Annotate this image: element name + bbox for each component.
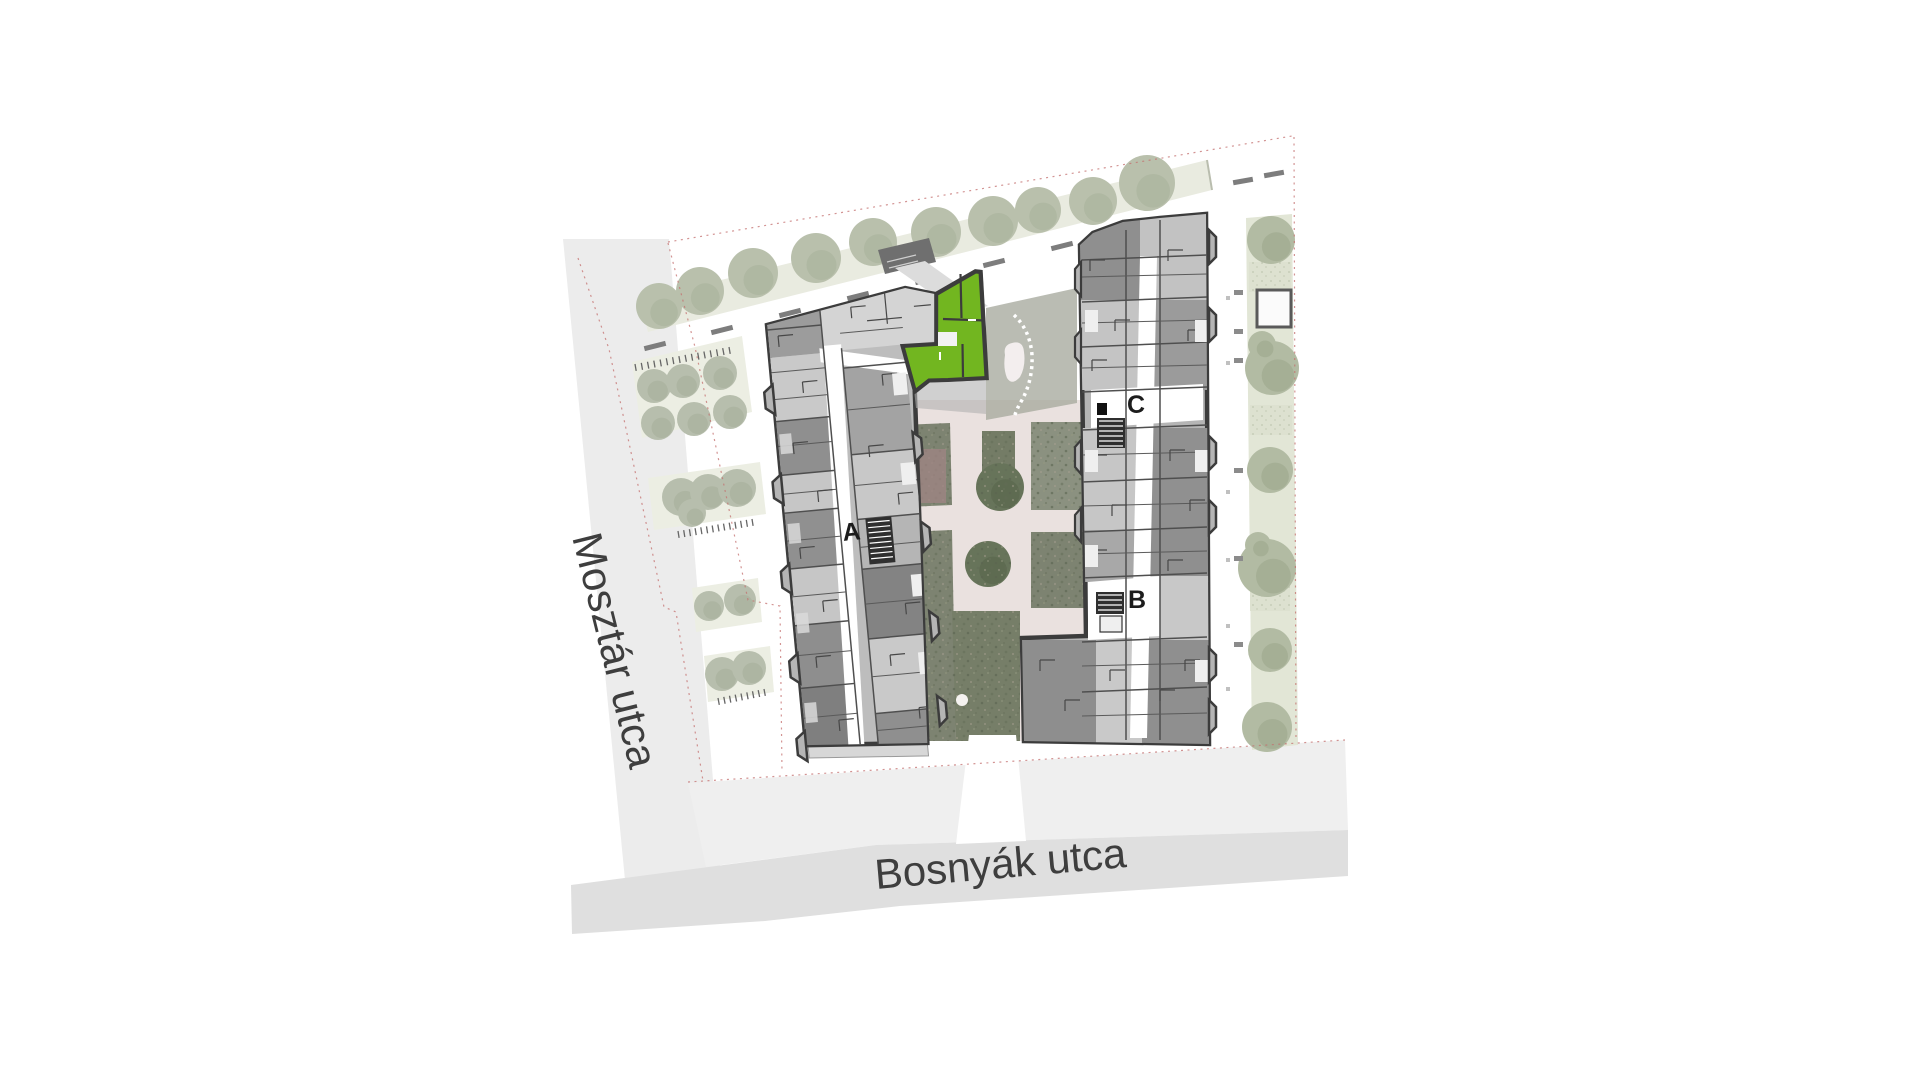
svg-text:C: C [1127,391,1145,419]
svg-text:B: B [1128,586,1146,614]
svg-text:A: A [841,517,862,547]
